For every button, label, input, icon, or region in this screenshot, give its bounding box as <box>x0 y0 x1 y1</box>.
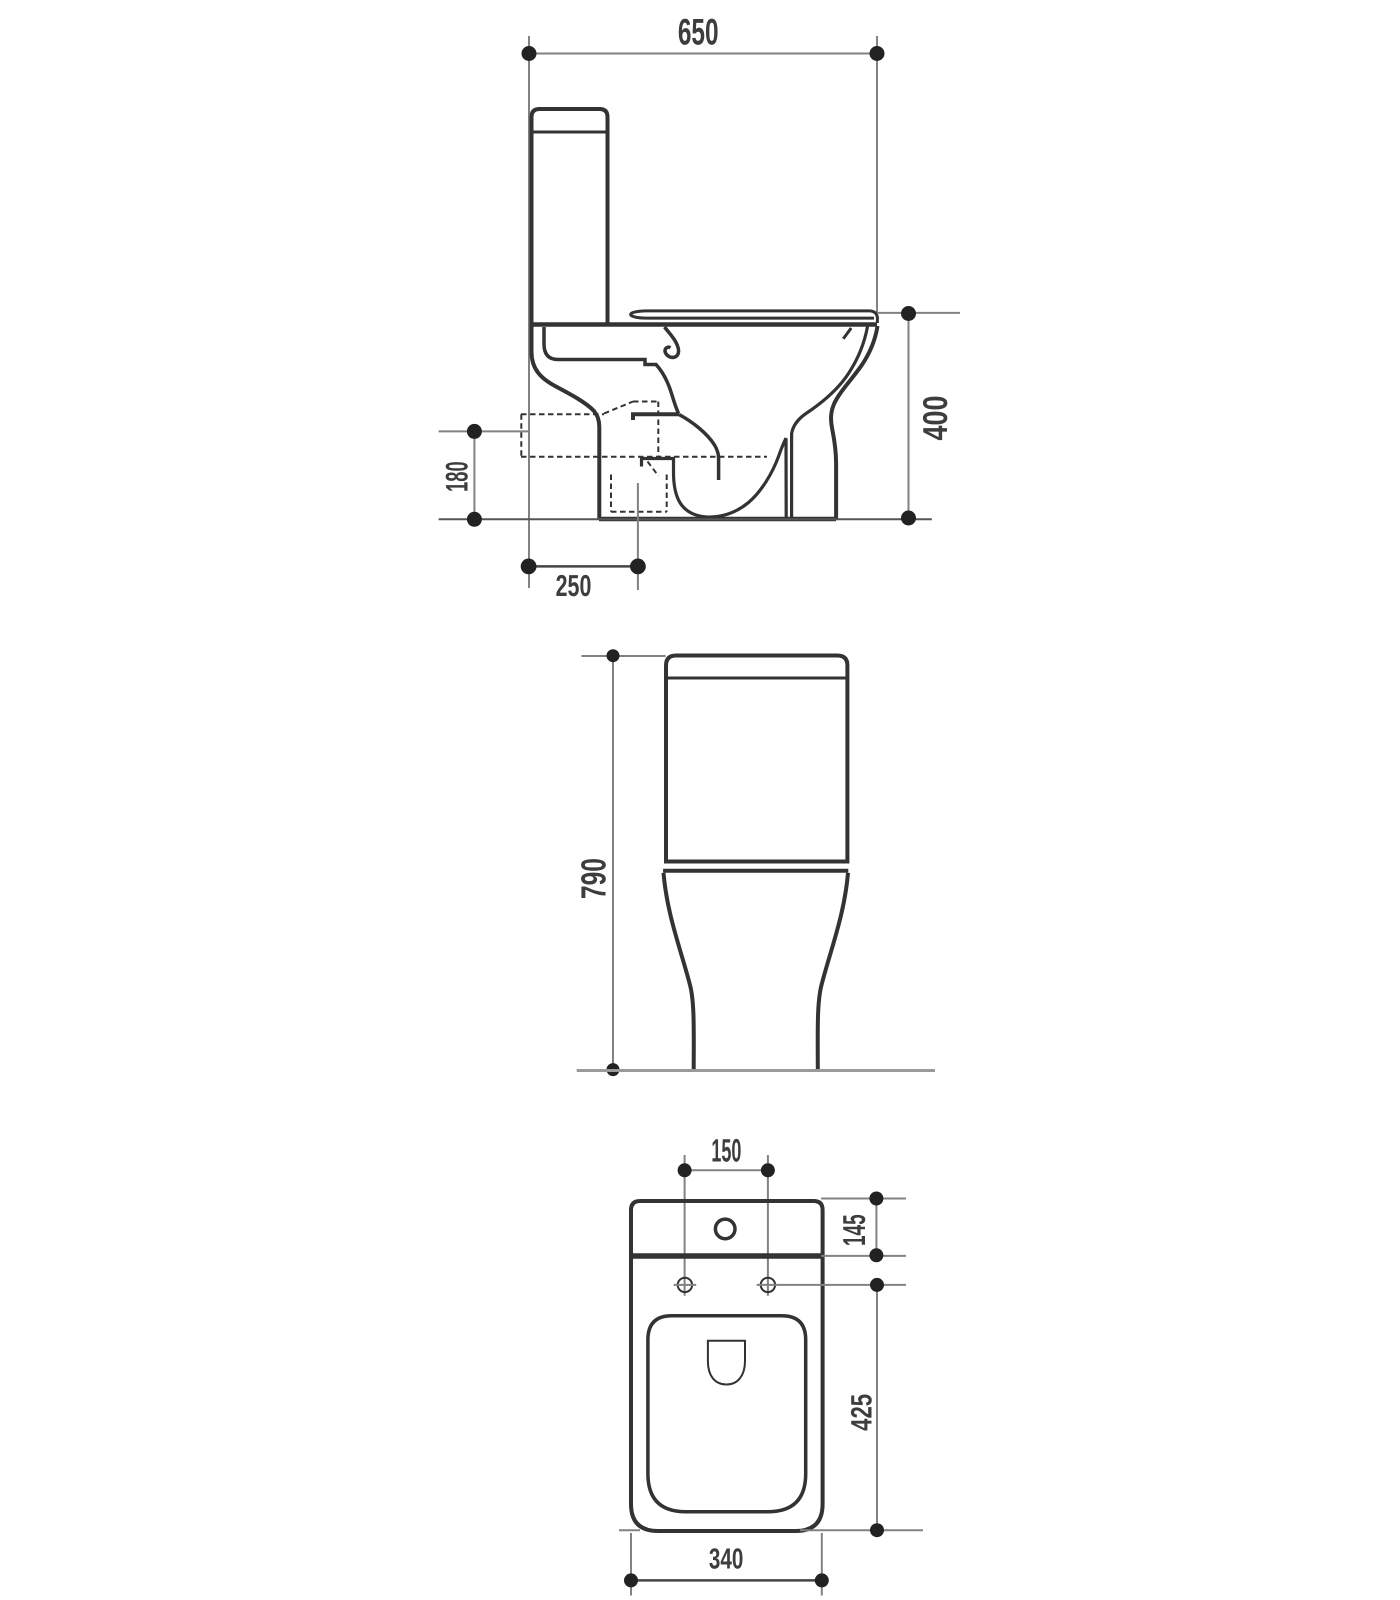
svg-text:145: 145 <box>836 1214 872 1246</box>
svg-text:180: 180 <box>439 461 474 492</box>
svg-text:400: 400 <box>917 396 955 441</box>
svg-text:150: 150 <box>711 1133 741 1169</box>
svg-text:790: 790 <box>575 858 614 899</box>
svg-text:425: 425 <box>845 1394 878 1431</box>
svg-text:650: 650 <box>678 11 719 52</box>
svg-text:340: 340 <box>709 1543 743 1575</box>
svg-text:250: 250 <box>556 570 592 603</box>
